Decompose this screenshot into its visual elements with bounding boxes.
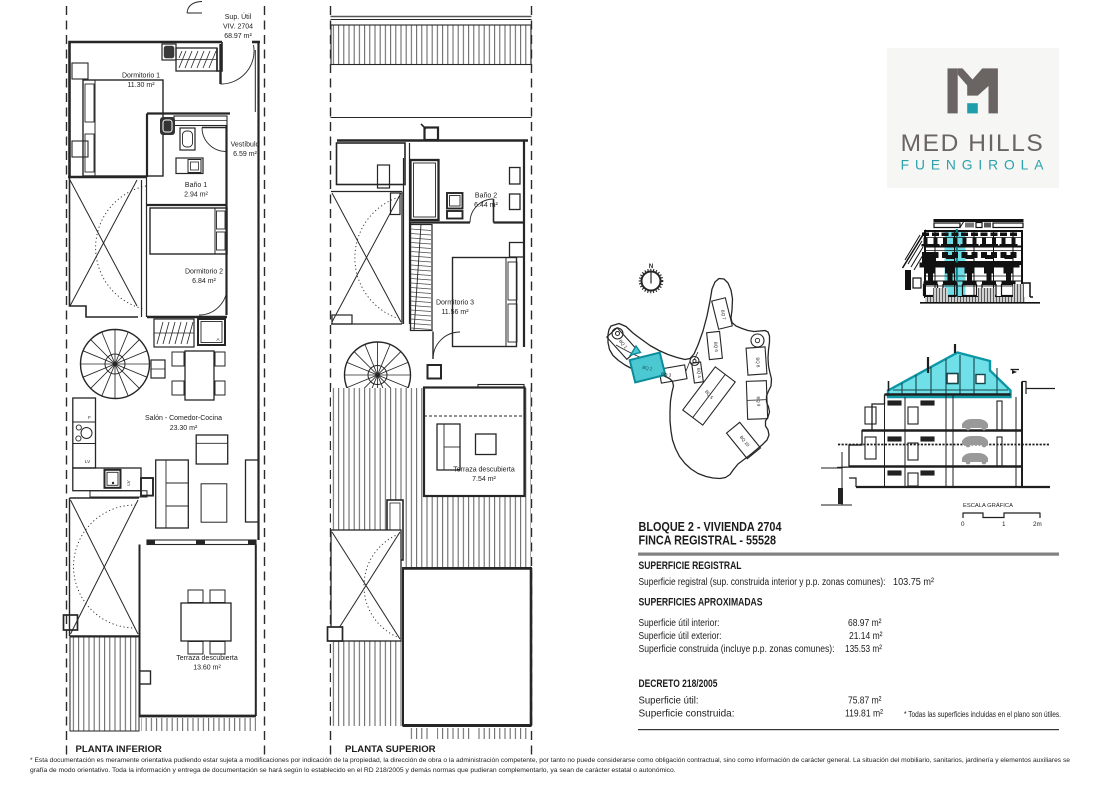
svg-text:BQ 9: BQ 9: [756, 396, 762, 407]
svg-text:Dormitorio 1: Dormitorio 1: [122, 73, 160, 80]
svg-text:Superficie construida (incluye: Superficie construida (incluye p.p. zona…: [639, 644, 835, 655]
svg-text:Superficie útil interior:: Superficie útil interior:: [639, 618, 720, 629]
svg-text:ESCALA GRÁFICA: ESCALA GRÁFICA: [963, 502, 1013, 509]
svg-text:N: N: [649, 264, 653, 270]
svg-text:Vestíbulo: Vestíbulo: [231, 142, 260, 149]
svg-text:6.59 m²: 6.59 m²: [233, 151, 257, 158]
svg-text:Salón - Comedor-Cocina: Salón - Comedor-Cocina: [145, 415, 222, 422]
svg-text:103.75 m²: 103.75 m²: [893, 577, 935, 588]
svg-text:DECRETO 218/2005: DECRETO 218/2005: [639, 678, 718, 690]
svg-text:11.30 m²: 11.30 m²: [127, 82, 155, 89]
svg-text:2m: 2m: [1033, 521, 1042, 528]
svg-text:21.14 m²: 21.14 m²: [849, 631, 883, 642]
svg-text:119.81 m²: 119.81 m²: [845, 709, 884, 720]
svg-text:Baño 2: Baño 2: [475, 193, 497, 200]
svg-text:PLANTA INFERIOR: PLANTA INFERIOR: [76, 744, 162, 755]
svg-text:Superficie útil:: Superficie útil:: [639, 696, 699, 707]
svg-text:Superficie construida:: Superficie construida:: [639, 709, 735, 720]
svg-text:Terraza descubierta: Terraza descubierta: [453, 467, 515, 474]
svg-text:BQ 6: BQ 6: [713, 342, 719, 353]
svg-text:Dormitorio 3: Dormitorio 3: [436, 300, 474, 307]
svg-text:Sup. Útil: Sup. Útil: [225, 12, 252, 21]
svg-text:PLANTA SUPERIOR: PLANTA SUPERIOR: [345, 744, 436, 755]
svg-text:Superficie útil exterior:: Superficie útil exterior:: [639, 631, 722, 642]
svg-text:75.87 m²: 75.87 m²: [848, 696, 882, 707]
svg-text:6.44 m²: 6.44 m²: [474, 202, 498, 209]
svg-text:13.60 m²: 13.60 m²: [193, 665, 221, 672]
svg-text:* Todas las superficies inclui: * Todas las superficies incluidas en el …: [904, 710, 1061, 719]
svg-text:F: F: [88, 415, 91, 420]
svg-text:Baño 1: Baño 1: [185, 182, 207, 189]
svg-text:23.30 m²: 23.30 m²: [170, 425, 198, 432]
svg-text:FINCA REGISTRAL - 55528: FINCA REGISTRAL - 55528: [639, 533, 777, 548]
svg-text:BQ 8: BQ 8: [755, 357, 761, 368]
svg-text:Terraza descubierta: Terraza descubierta: [176, 655, 238, 662]
svg-text:135.53 m²: 135.53 m²: [845, 644, 883, 655]
svg-text:SUPERFICIE REGISTRAL: SUPERFICIE REGISTRAL: [639, 560, 742, 572]
svg-text:2.94 m²: 2.94 m²: [184, 192, 208, 199]
svg-text:BQ 4: BQ 4: [696, 368, 702, 379]
svg-text:MED HILLS: MED HILLS: [901, 130, 1045, 157]
svg-text:1: 1: [1002, 521, 1006, 528]
svg-text:68.97 m²: 68.97 m²: [848, 618, 882, 629]
svg-text:Superficie registral (sup. con: Superficie registral (sup. construida in…: [639, 577, 886, 588]
svg-text:* Esta documentación es merame: * Esta documentación es meramente orient…: [30, 757, 1070, 764]
svg-text:11.56 m²: 11.56 m²: [441, 309, 469, 316]
svg-text:SUPERFICIES APROXIMADAS: SUPERFICIES APROXIMADAS: [639, 597, 763, 609]
svg-text:7.54 m²: 7.54 m²: [472, 476, 496, 483]
svg-text:VIV. 2704: VIV. 2704: [223, 24, 253, 31]
svg-text:6.84 m²: 6.84 m²: [192, 278, 216, 285]
svg-text:68.97 m²: 68.97 m²: [224, 33, 252, 40]
svg-text:Dormitorio 2: Dormitorio 2: [185, 269, 223, 276]
svg-text:FUENGIROLA: FUENGIROLA: [901, 158, 1050, 173]
svg-text:grafía de modo orientativo. To: grafía de modo orientativo. Toda la info…: [30, 767, 676, 774]
svg-text:0: 0: [961, 521, 965, 528]
